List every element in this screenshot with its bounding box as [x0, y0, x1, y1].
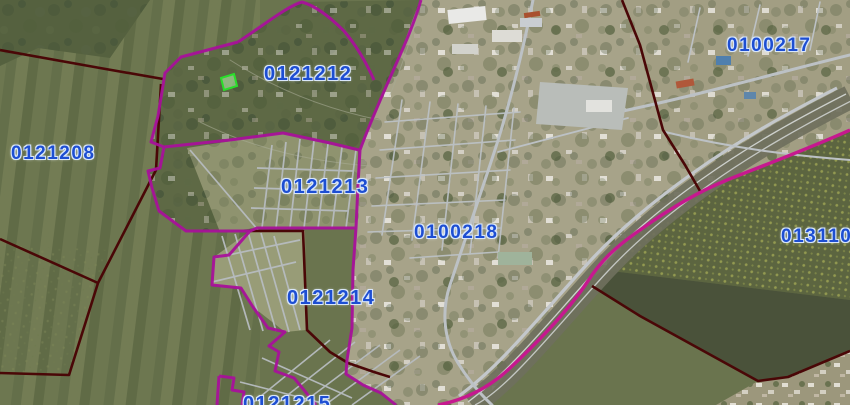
zone-label-0121213: 0121213: [281, 176, 369, 199]
satellite-map[interactable]: 0121208 0121212 0121213 0100218 0121214 …: [0, 0, 850, 405]
white-roof-1: [586, 100, 612, 112]
blue-roof-1: [716, 56, 731, 65]
zone-label-0131104: 0131104: [781, 226, 850, 248]
zone-label-0121212: 0121212: [264, 63, 352, 86]
industrial-roof-4: [520, 18, 542, 27]
blue-roof-2: [744, 92, 756, 99]
map-canvas: [0, 0, 850, 405]
industrial-roof-3: [452, 44, 478, 54]
zone-label-0121214: 0121214: [287, 287, 375, 310]
zone-label-0121208: 0121208: [11, 143, 95, 165]
selected-parcel-highlight[interactable]: [221, 74, 237, 90]
school-roof: [498, 252, 532, 265]
parking-lot: [536, 82, 628, 130]
zone-label-0100218: 0100218: [414, 222, 498, 244]
industrial-roof-2: [492, 30, 522, 42]
zone-label-0100217: 0100217: [727, 35, 811, 57]
zone-label-0121215: 0121215: [243, 393, 331, 405]
